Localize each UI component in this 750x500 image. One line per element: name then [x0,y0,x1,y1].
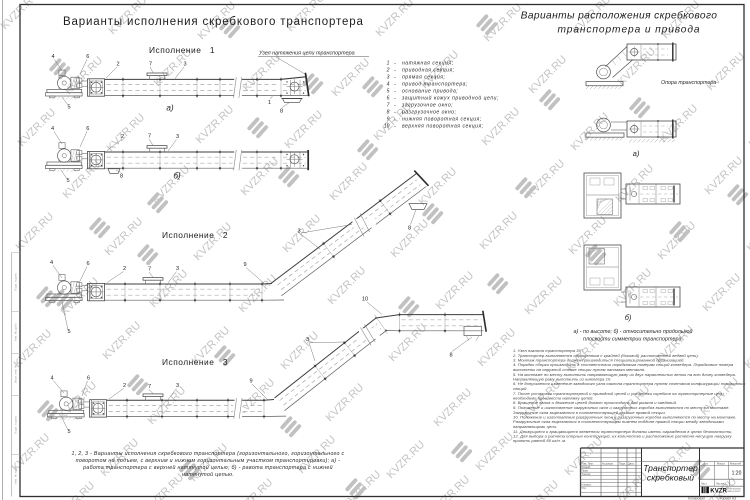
svg-text:натянутой цепью.: натянутой цепью. [182,471,234,478]
svg-text:приводная секция;: приводная секция; [402,68,455,74]
svg-text:защитный кожух приводной цепи;: защитный кожух приводной цепи; [401,95,499,102]
svg-text:разгрузочное окно;: разгрузочное окно; [401,110,456,116]
svg-text:-: - [394,96,396,102]
svg-text:Варианты расположения скребков: Варианты расположения скребкового [521,10,718,22]
svg-text:1: 1 [387,61,390,67]
svg-text:а): а) [633,149,640,158]
svg-text:Пров.: Пров. [582,468,589,472]
svg-text:-: - [394,75,396,81]
svg-text:3: 3 [387,75,390,81]
svg-text:3: 3 [306,337,309,343]
svg-text:работа транспортера с верхней: работа транспортера с верхней натянутой … [82,464,333,471]
svg-text:-: - [394,103,396,109]
svg-text:основание привода;: основание привода; [402,89,458,95]
svg-text:нижняя поворотная секция;: нижняя поворотная секция; [402,117,482,123]
svg-text:1:20: 1:20 [732,471,742,477]
svg-text:2: 2 [123,383,126,389]
svg-text:Подп.: Подп. [619,461,626,465]
svg-text:8: 8 [408,226,411,232]
svg-text:8: 8 [280,108,283,114]
svg-text:4: 4 [51,126,54,132]
svg-text:Н.контр.: Н.контр. [582,482,592,486]
svg-text:б): б) [173,172,181,181]
svg-text:Формат А3: Формат А3 [719,496,736,500]
svg-text:9: 9 [387,117,390,123]
svg-text:Т.контр.: Т.контр. [582,472,592,476]
svg-text:-: - [394,110,396,116]
svg-text:3: 3 [176,134,179,140]
svg-text:Узел натяжения цепи транспорте: Узел натяжения цепи транспортера [258,51,355,57]
svg-text:3: 3 [297,229,300,235]
svg-text:натяжная секция;: натяжная секция; [402,61,454,67]
svg-text:Лит.: Лит. [704,462,709,466]
svg-text:-: - [394,124,396,130]
svg-text:4: 4 [50,260,53,266]
svg-text:Разраб.: Разраб. [582,465,592,469]
svg-text:9: 9 [243,262,246,268]
svg-text:плоскости симметрии транспорте: плоскости симметрии транспортера. [583,337,683,343]
svg-text:8: 8 [449,353,452,359]
svg-text:принять равной 80 кг/п. м.: принять равной 80 кг/п. м. [513,438,566,443]
svg-text:6: 6 [86,261,89,267]
svg-text:Исполнение 3: Исполнение 3 [162,357,228,367]
svg-text:Изм. Лист: Изм. Лист [582,461,595,465]
svg-text:1, 2, 3 - Варианты исполнения: 1, 2, 3 - Варианты исполнения скребковог… [71,451,344,457]
svg-text:3: 3 [176,383,179,389]
svg-text:№ докум.: № докум. [602,462,614,465]
svg-text:Копировал: Копировал [688,496,705,500]
svg-text:б): б) [625,313,632,322]
svg-text:2: 2 [386,68,390,74]
svg-text:1: 1 [268,100,271,106]
svg-text:Масса: Масса [717,462,725,466]
svg-text:-: - [394,82,396,88]
svg-text:7: 7 [148,267,151,273]
svg-text:7: 7 [148,384,151,390]
svg-text:верхняя поворотная секция;: верхняя поворотная секция; [402,124,484,130]
svg-text:загрузочное окно;: загрузочное окно; [401,103,453,109]
svg-text:Листов 1: Листов 1 [716,481,727,485]
svg-text:Утв.: Утв. [582,486,587,490]
svg-text:Подп. и дата: Подп. и дата [14,273,18,291]
svg-text:8: 8 [120,174,123,180]
svg-text:Опора транспортера: Опора транспортера [661,80,716,86]
svg-text:Дата: Дата [628,461,634,465]
svg-text:привод транспортера;: привод транспортера; [402,82,468,88]
svg-text:Транспортер: Транспортер [643,463,698,473]
svg-text:7: 7 [149,62,152,68]
svg-text:скребковый: скребковый [647,472,694,482]
svg-text:а): а) [166,104,174,113]
svg-text:6: 6 [387,96,390,102]
svg-text:5: 5 [387,89,390,95]
svg-text:-: - [394,89,396,95]
svg-text:6: 6 [87,375,90,381]
svg-text:6. Не допускается изменение за: 6. Не допускается изменение заводского у… [513,381,746,386]
svg-text:6: 6 [86,126,89,132]
svg-text:прямая секция;: прямая секция; [402,75,446,81]
svg-text:поворотом на подъем, с верхним: поворотом на подъем, с верхним и нижним … [76,458,341,464]
svg-text:Варианты исполнения скребковог: Варианты исполнения скребкового транспор… [63,16,364,28]
svg-text:10: 10 [362,296,368,302]
svg-text:10: 10 [384,124,390,130]
svg-text:5: 5 [67,105,70,111]
svg-text:Исполнение 2: Исполнение 2 [162,230,228,240]
svg-text:Лист: Лист [701,481,707,485]
svg-text:4: 4 [50,375,53,381]
svg-text:-: - [394,117,396,123]
svg-text:6: 6 [86,54,89,60]
svg-text:Исполнение 1: Исполнение 1 [149,45,215,55]
svg-text:Масштаб: Масштаб [730,462,742,466]
svg-text:-: - [394,68,396,74]
svg-text:2: 2 [116,62,119,68]
svg-text:3: 3 [176,266,179,272]
svg-text:7: 7 [387,103,390,109]
svg-text:3: 3 [183,62,186,68]
svg-text:транспортера и привода: транспортера и привода [558,25,701,36]
svg-text:2: 2 [121,134,124,140]
svg-text:9: 9 [249,379,252,385]
svg-text:KVZR: KVZR [710,487,727,494]
svg-text:4: 4 [51,54,54,60]
svg-text:а) - по высоте; б) - относител: а) - по высоте; б) - относительно продол… [573,328,692,335]
svg-text:Взам. инв. №: Взам. инв. № [14,364,18,383]
svg-text:4: 4 [387,82,390,88]
svg-text:Подп. и дата: Подп. и дата [14,416,18,434]
svg-text:-: - [394,61,396,67]
svg-text:8: 8 [387,110,390,116]
svg-text:7: 7 [148,134,151,140]
svg-text:Инв. № подл.: Инв. № подл. [14,465,18,484]
svg-text:2: 2 [123,266,126,272]
svg-text:ЗАВОД КВЗР: ЗАВОД КВЗР [727,490,741,493]
svg-text:Инв. № дубл.: Инв. № дубл. [14,323,18,342]
